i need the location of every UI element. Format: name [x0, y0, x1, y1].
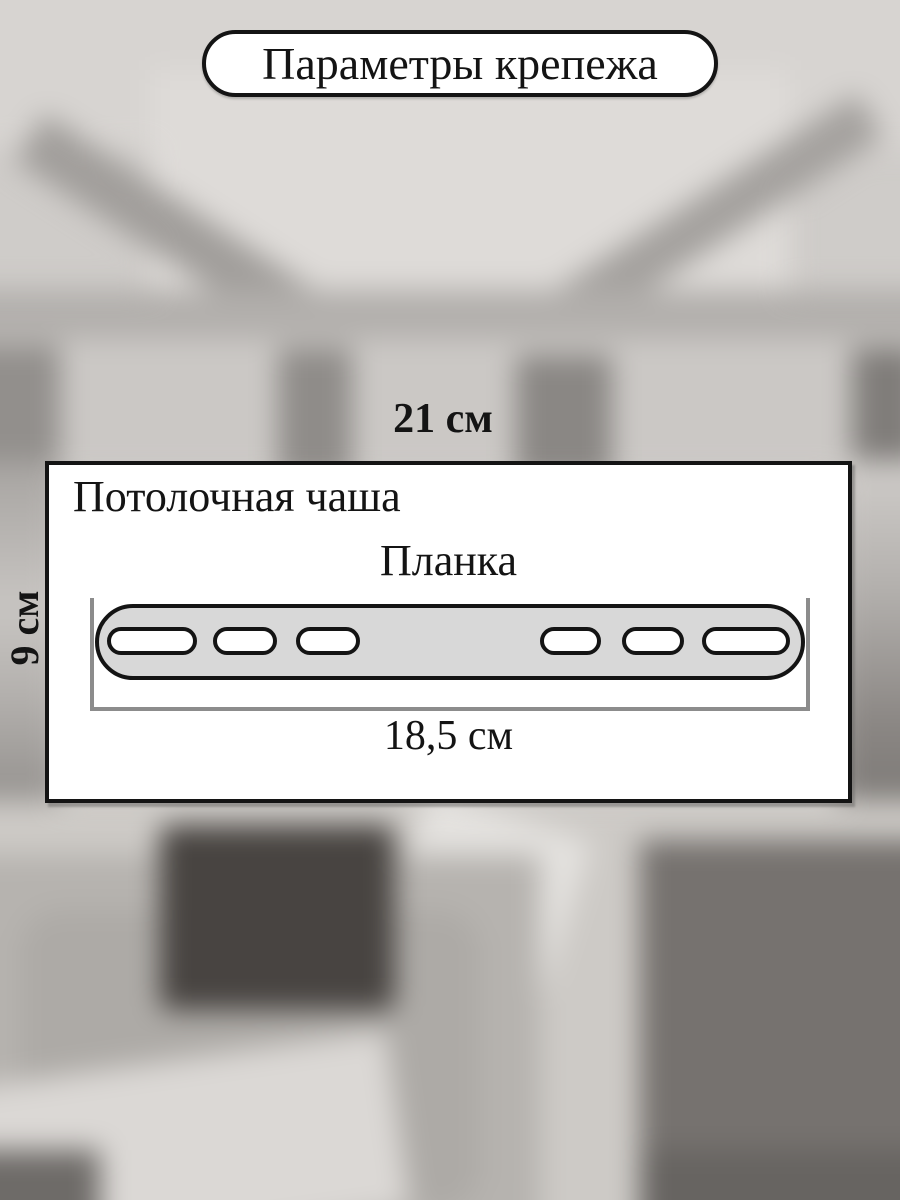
- title-badge: Параметры крепежа: [202, 30, 718, 97]
- mounting-plank-shape: [95, 604, 805, 680]
- dimension-label-width: 21 см: [293, 398, 593, 440]
- diagram-panel: Потолочная чаша Планка 18,5 см: [45, 461, 852, 803]
- plank-slot: [622, 627, 684, 655]
- ceiling-cove-band: [0, 290, 900, 345]
- plank-slot: [296, 627, 360, 655]
- sofa-shadow: [640, 1150, 900, 1200]
- product-infographic: Параметры крепежа 21 см 9 см Потолочная …: [0, 0, 900, 1200]
- sofa: [640, 840, 900, 1200]
- plank-slot: [213, 627, 277, 655]
- dimension-label-height: 9 см: [5, 591, 45, 666]
- dimension-label-plank-width: 18,5 см: [49, 715, 848, 757]
- plank-slot: [107, 627, 197, 655]
- ceiling-cup-label: Потолочная чаша: [73, 473, 401, 521]
- coffee-table: [160, 825, 395, 1010]
- dimension-bracket-bottom: [90, 707, 810, 711]
- diagram-panel-inner: Потолочная чаша Планка 18,5 см: [49, 465, 848, 799]
- plank-slot: [540, 627, 601, 655]
- page-title: Параметры крепежа: [262, 41, 658, 87]
- dimension-bracket-left: [90, 598, 94, 711]
- dimension-bracket-right: [806, 598, 810, 711]
- plank-label: Планка: [49, 537, 848, 585]
- plank-slot: [702, 627, 790, 655]
- floor-corner-shadow: [0, 1150, 100, 1200]
